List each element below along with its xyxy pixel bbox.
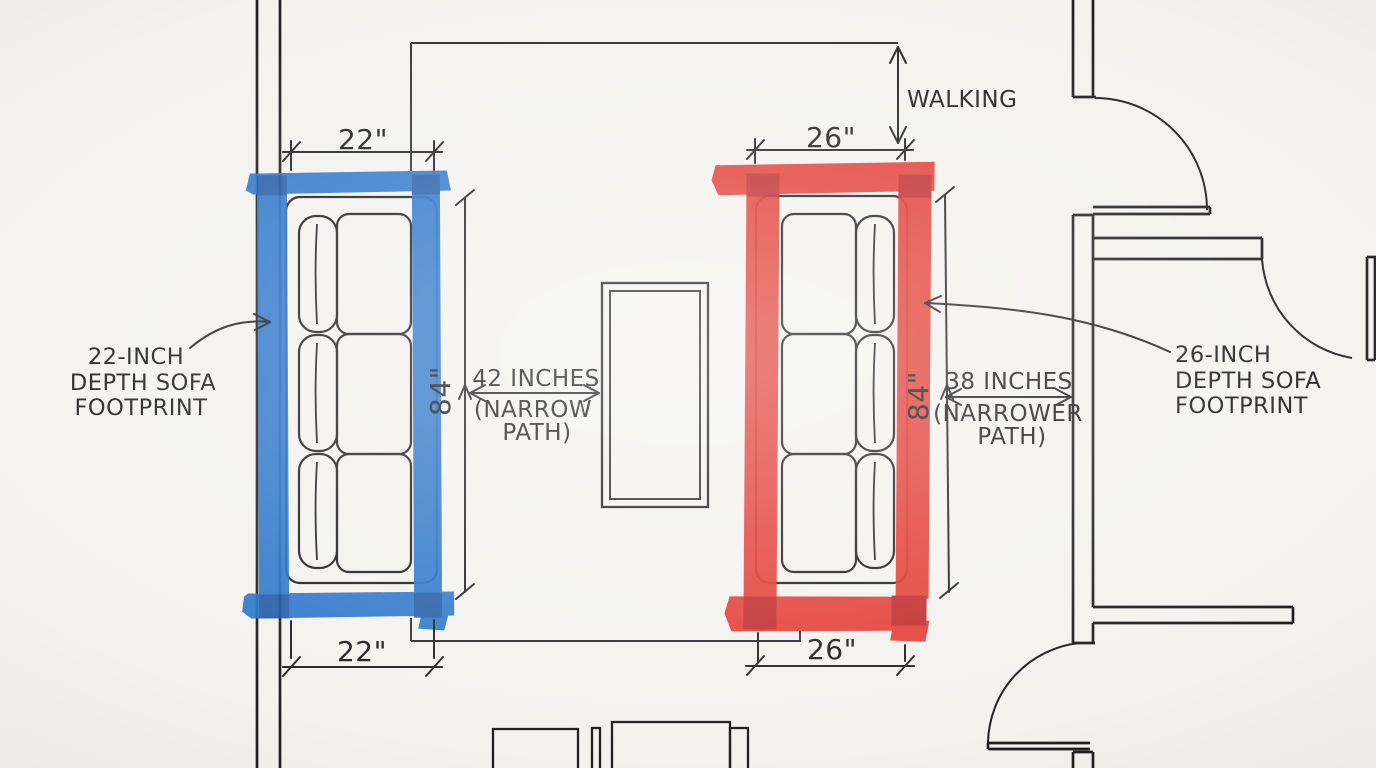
floor-plan-photo: 22" 22" 84" 26" 26" 84" 42 INCHES (N <box>0 0 1376 768</box>
right-sofa-label-line2: DEPTH SOFA <box>1175 368 1321 394</box>
dim-blue-length-text: 84" <box>424 366 457 416</box>
red-tape-left-strip <box>743 165 779 629</box>
left-sofa-label-line3: FOOTPRINT <box>74 395 207 421</box>
narrow-path-line3: PATH) <box>502 420 571 446</box>
floor-plan-drawing: 22" 22" 84" 26" 26" 84" 42 INCHES (N <box>0 0 1376 768</box>
narrower-path-line3: PATH) <box>977 424 1046 450</box>
dim-blue-width-bottom-text: 22" <box>337 635 387 668</box>
dim-red-width-top-text: 26" <box>806 121 856 154</box>
narrow-path-line1: 42 INCHES <box>472 366 600 392</box>
dim-red-width-bottom-text: 26" <box>807 633 857 666</box>
walking-label: WALKING <box>907 87 1017 113</box>
right-sofa-label-line3: FOOTPRINT <box>1175 393 1308 419</box>
blue-tape-left-strip <box>257 174 289 617</box>
narrower-path-line1: 38 INCHES <box>945 369 1073 395</box>
left-sofa-label-line1: 22-INCH <box>88 344 184 370</box>
dim-blue-width-top-text: 22" <box>338 123 388 156</box>
dim-red-length-text: 84" <box>902 371 935 421</box>
left-sofa-label-line2: DEPTH SOFA <box>70 370 216 396</box>
right-sofa-label-line1: 26-INCH <box>1175 342 1271 368</box>
